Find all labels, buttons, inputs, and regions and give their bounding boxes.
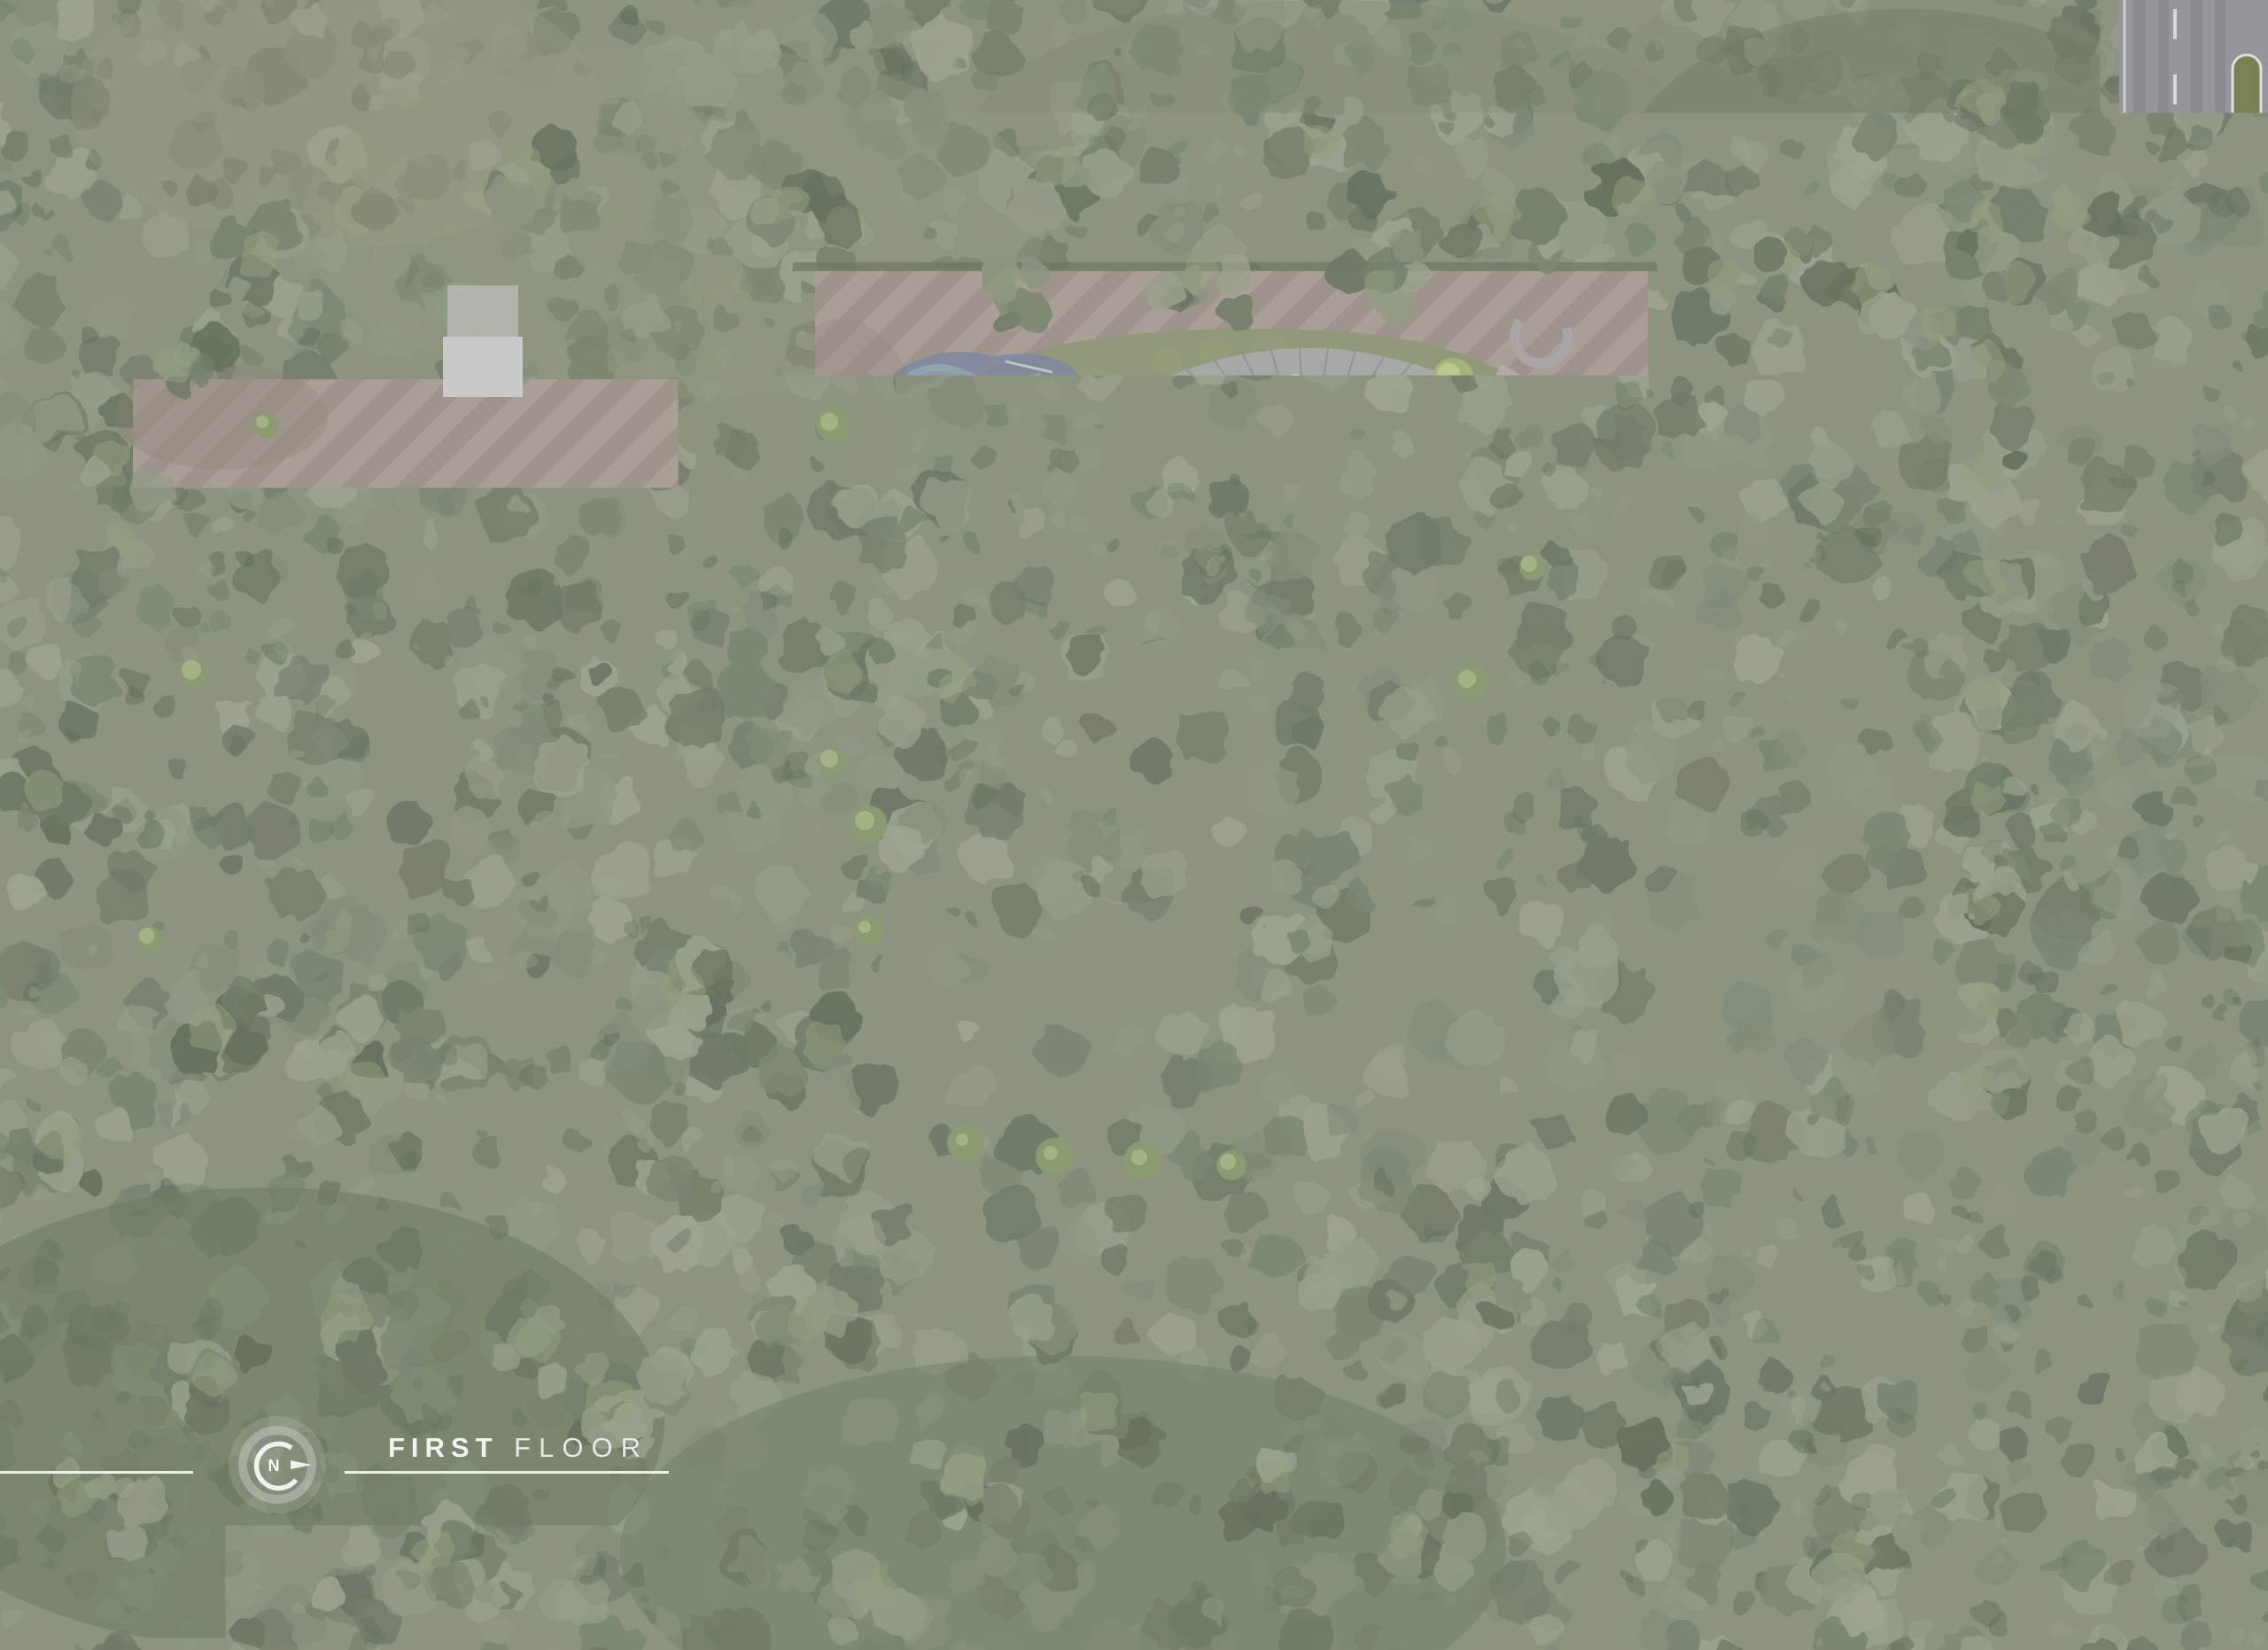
svg-text:LIFT: LIFT: [1238, 867, 1258, 877]
svg-text:TERRACE: TERRACE: [190, 555, 241, 567]
svg-text:103: 103: [1197, 988, 1234, 1012]
svg-text:1ST FLOOR: 1ST FLOOR: [1505, 976, 1573, 989]
svg-text:TERRACE: TERRACE: [963, 934, 1014, 946]
svg-text:TERRACE @ 1ST FLOOR: TERRACE @ 1ST FLOOR: [493, 607, 503, 719]
svg-text:LIFT: LIFT: [1816, 790, 1837, 800]
svg-text:104: 104: [346, 457, 384, 481]
svg-text:A: A: [1732, 770, 1744, 790]
svg-text:C: C: [478, 550, 490, 570]
svg-text:107: 107: [1808, 621, 1845, 645]
svg-text:UP: UP: [460, 518, 475, 531]
svg-text:1ST FLOOR: 1ST FLOOR: [1430, 1025, 1497, 1039]
svg-text:WIDE PASSAGE: WIDE PASSAGE: [1922, 897, 1936, 985]
svg-text:B: B: [1177, 877, 1190, 897]
svg-text:105: 105: [1808, 827, 1845, 851]
svg-text:101: 101: [1622, 628, 1659, 652]
svg-text:TERRACE: TERRACE: [732, 533, 783, 546]
svg-text:LIFT: LIFT: [1816, 759, 1837, 770]
svg-text:102: 102: [1197, 761, 1234, 785]
svg-text:102: 102: [1808, 1016, 1845, 1040]
svg-text:DN: DN: [493, 518, 509, 531]
svg-text:TERRACE @: TERRACE @: [1399, 845, 1472, 859]
svg-text:109: 109: [1808, 495, 1845, 519]
svg-text:TERRACE: TERRACE: [732, 555, 783, 567]
svg-text:TER.: TER.: [1565, 426, 1588, 437]
svg-text:UP: UP: [1148, 899, 1163, 912]
svg-text:UP: UP: [1677, 791, 1692, 804]
svg-text:101: 101: [1138, 761, 1175, 785]
svg-text:101: 101: [584, 457, 621, 481]
svg-text:108: 108: [1808, 550, 1845, 574]
svg-text:104: 104: [1138, 988, 1175, 1012]
svg-text:LIFT: LIFT: [367, 551, 390, 564]
svg-text:101: 101: [1808, 1092, 1845, 1116]
svg-text:110: 110: [1809, 440, 1845, 463]
svg-text:DN: DN: [1148, 864, 1163, 876]
svg-text:102: 102: [1622, 898, 1659, 922]
svg-text:TERRACE: TERRACE: [190, 533, 241, 546]
svg-text:DN: DN: [1922, 761, 1937, 772]
svg-text:FIRST FLOOR: FIRST FLOOR: [388, 1432, 649, 1463]
svg-text:106: 106: [1808, 693, 1845, 717]
svg-text:LIFT: LIFT: [1238, 899, 1258, 909]
svg-text:102: 102: [584, 629, 621, 653]
svg-text:TERRACE @: TERRACE @: [1503, 959, 1575, 972]
svg-text:103: 103: [1808, 963, 1845, 987]
svg-text:TER.: TER.: [1720, 504, 1731, 526]
svg-text:WIDE PASSAGE: WIDE PASSAGE: [1922, 576, 1936, 665]
svg-text:TERRACE @ 1ST FLOOR: TERRACE @ 1ST FLOOR: [460, 607, 470, 719]
svg-text:1ST FLOOR: 1ST FLOOR: [1402, 862, 1469, 876]
svg-text:LIFT: LIFT: [1730, 723, 1751, 734]
svg-text:DN: DN: [1677, 754, 1692, 767]
svg-text:LIFT: LIFT: [579, 551, 602, 564]
svg-text:LIFT: LIFT: [1730, 827, 1751, 837]
svg-text:103: 103: [346, 629, 384, 653]
svg-text:104: 104: [1808, 895, 1845, 919]
svg-text:TERRACE: TERRACE: [963, 831, 1014, 844]
svg-text:TERRACE @: TERRACE @: [1427, 1008, 1500, 1022]
svg-text:N: N: [268, 1457, 280, 1475]
